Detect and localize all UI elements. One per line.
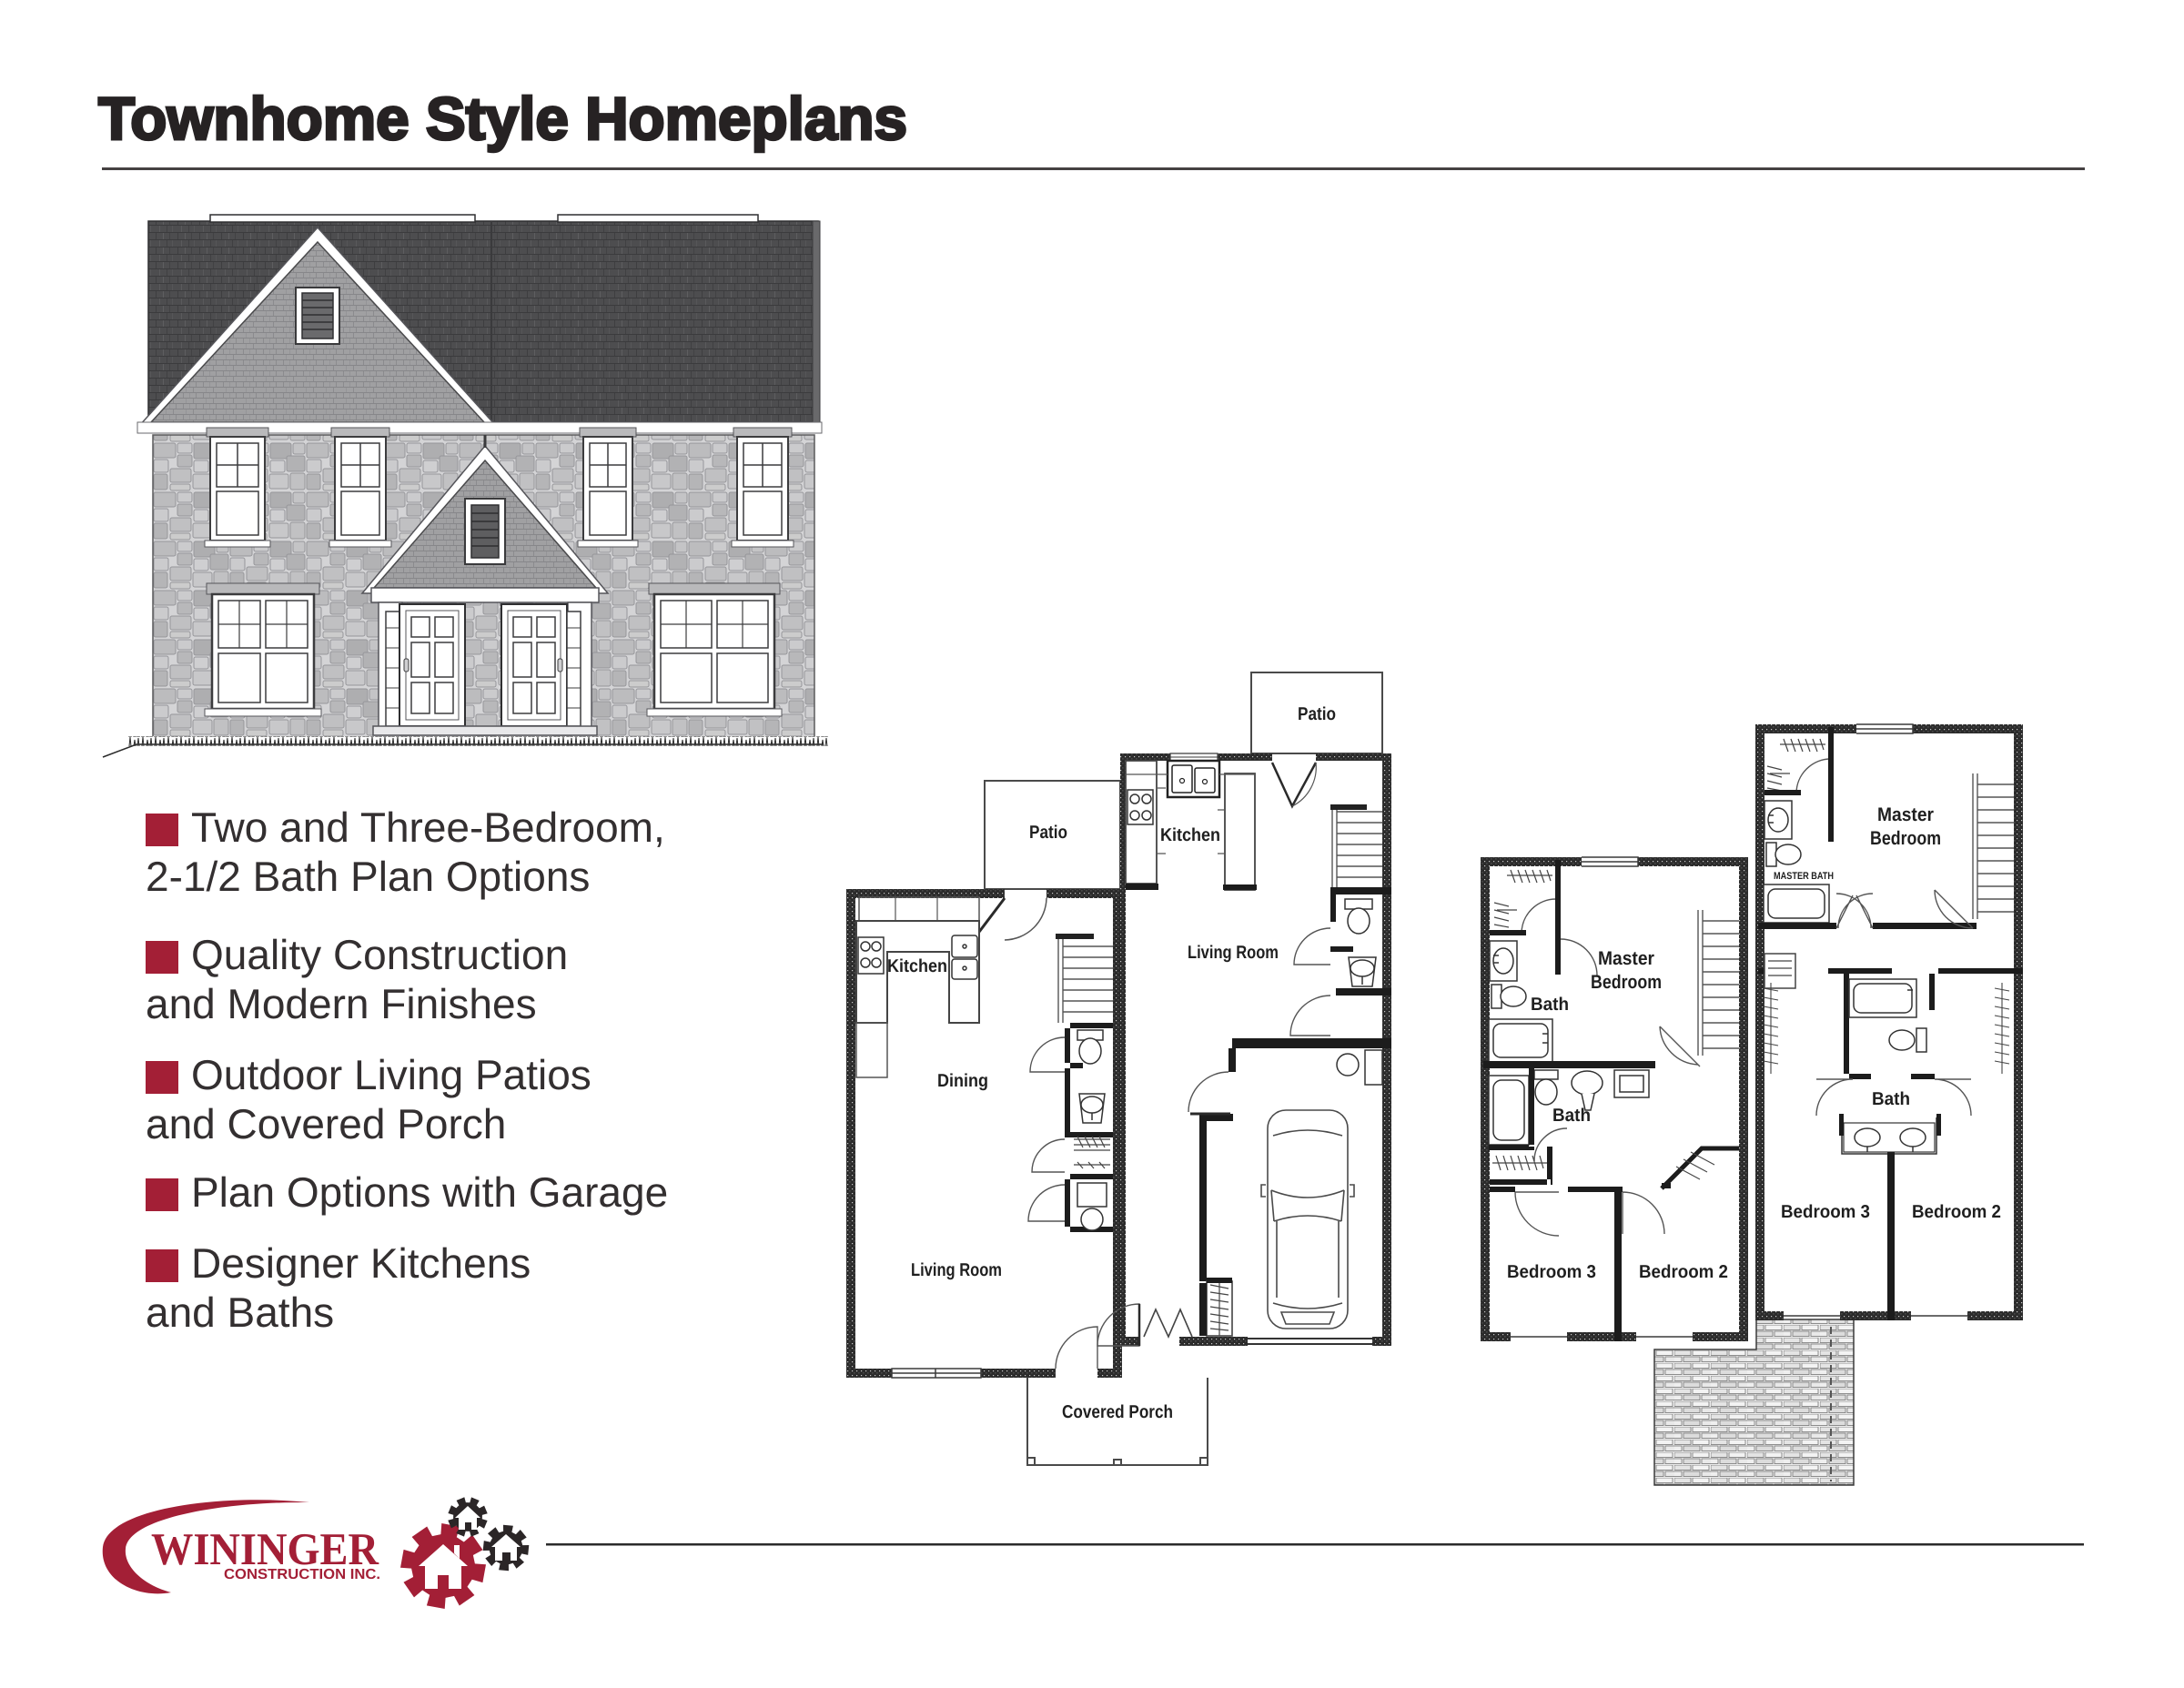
svg-text:Patio: Patio: [1029, 823, 1067, 843]
svg-text:Bedroom 2: Bedroom 2: [1639, 1262, 1728, 1282]
svg-text:and Modern Finishes: and Modern Finishes: [146, 980, 537, 1027]
svg-text:and Covered Porch: and Covered Porch: [146, 1100, 506, 1147]
svg-text:Master: Master: [1877, 804, 1934, 825]
svg-text:Plan Options with Garage: Plan Options with Garage: [191, 1168, 668, 1216]
svg-text:Townhome Style Homeplans: Townhome Style Homeplans: [98, 85, 907, 152]
svg-text:MASTER BATH: MASTER BATH: [1774, 871, 1834, 882]
svg-text:Bedroom: Bedroom: [1591, 972, 1662, 993]
svg-text:Kitchen: Kitchen: [1160, 825, 1220, 845]
svg-text:CONSTRUCTION INC.: CONSTRUCTION INC.: [224, 1567, 380, 1582]
svg-text:Bedroom 2: Bedroom 2: [1912, 1202, 2001, 1222]
svg-text:Outdoor Living Patios: Outdoor Living Patios: [191, 1051, 591, 1098]
svg-text:Bedroom 3: Bedroom 3: [1781, 1202, 1870, 1222]
svg-text:Dining: Dining: [937, 1071, 988, 1091]
svg-text:and Baths: and Baths: [146, 1289, 334, 1336]
svg-text:Patio: Patio: [1298, 704, 1336, 724]
svg-text:Living Room: Living Room: [911, 1260, 1002, 1280]
svg-text:2-1/2 Bath Plan Options: 2-1/2 Bath Plan Options: [146, 853, 590, 900]
svg-text:Designer Kitchens: Designer Kitchens: [191, 1239, 531, 1287]
svg-text:Quality Construction: Quality Construction: [191, 931, 568, 978]
svg-text:Two and Three-Bedroom,: Two and Three-Bedroom,: [191, 804, 665, 851]
svg-text:Bedroom 3: Bedroom 3: [1507, 1262, 1596, 1282]
svg-text:Bath: Bath: [1872, 1089, 1910, 1109]
svg-text:Bath: Bath: [1552, 1106, 1591, 1126]
svg-text:Bath: Bath: [1531, 995, 1569, 1015]
svg-text:Covered Porch: Covered Porch: [1062, 1402, 1173, 1422]
svg-text:Bedroom: Bedroom: [1870, 828, 1941, 849]
svg-text:Living Room: Living Room: [1188, 943, 1279, 963]
svg-text:Kitchen: Kitchen: [887, 956, 947, 976]
svg-text:Master: Master: [1598, 948, 1654, 969]
